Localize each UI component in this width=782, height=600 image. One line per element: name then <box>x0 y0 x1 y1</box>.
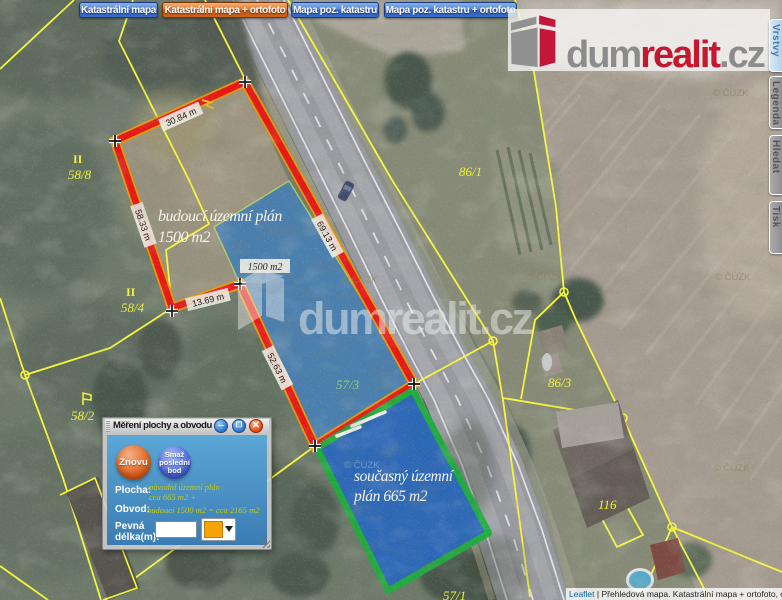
svg-text:dumrealit.cz: dumrealit.cz <box>566 34 765 71</box>
